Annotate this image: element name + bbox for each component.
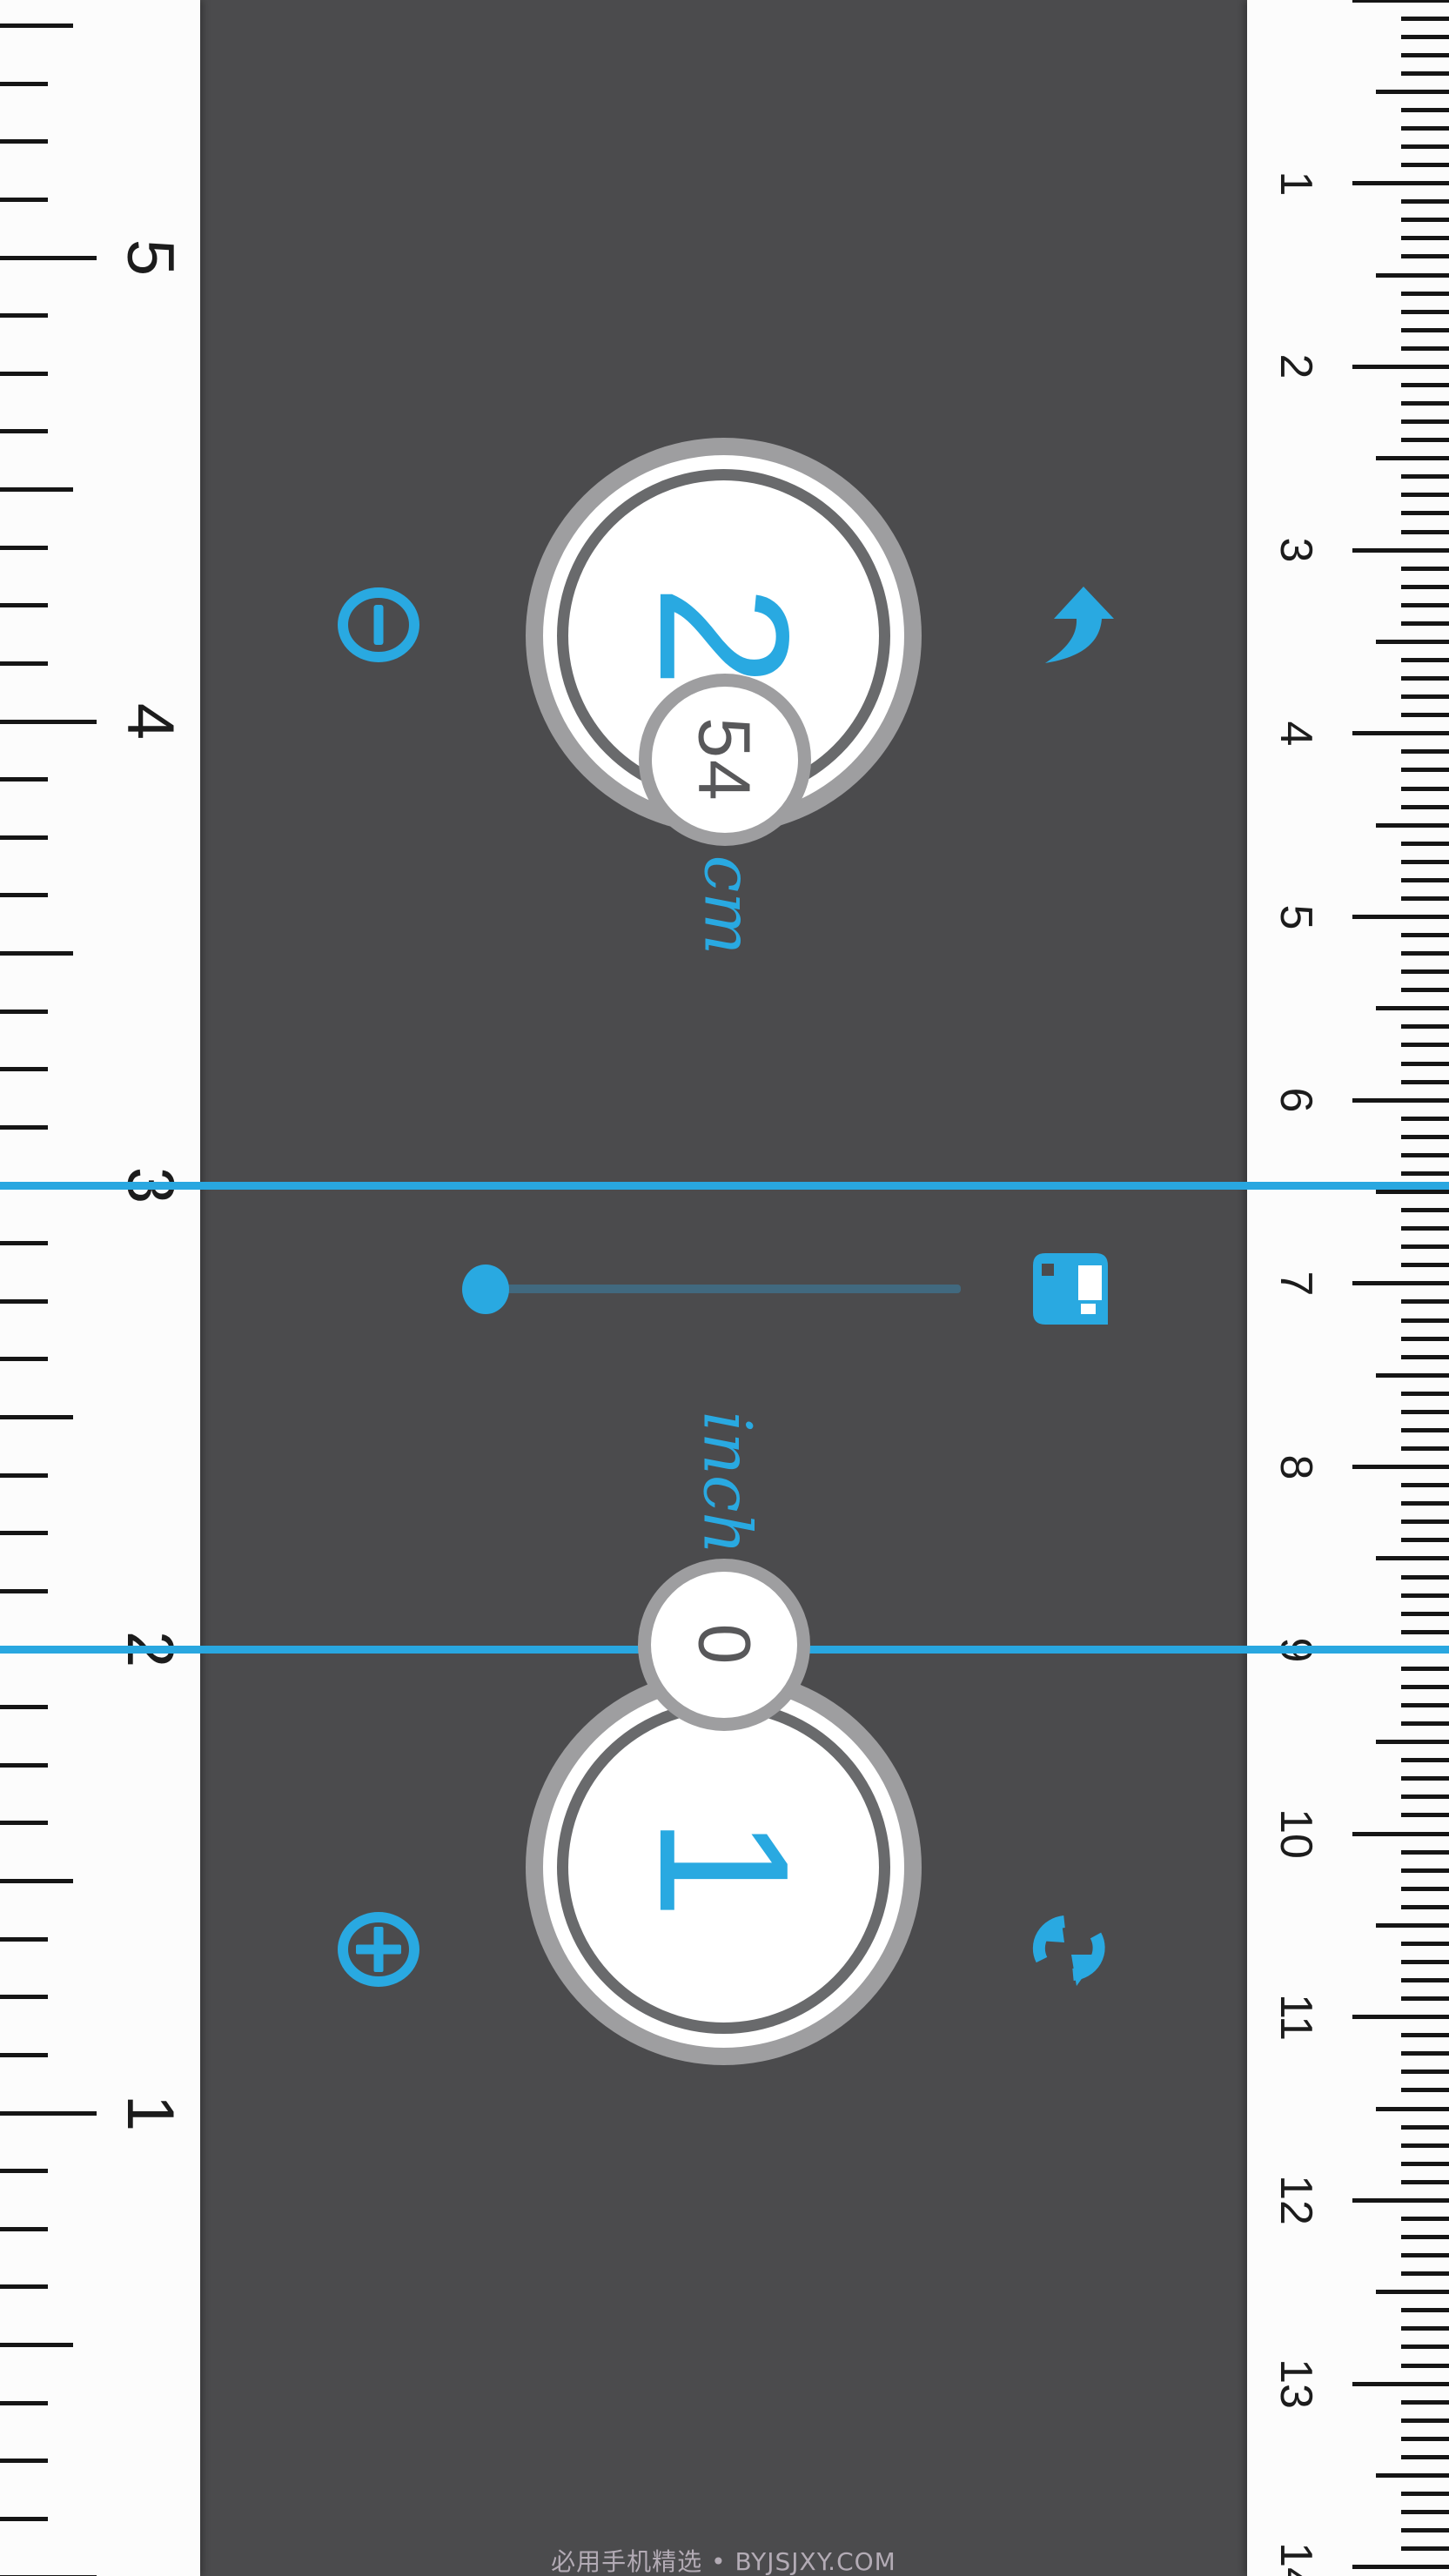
cm-ruler: 1234567891011121314 [1247, 0, 1449, 2576]
add-button[interactable] [337, 1911, 420, 1992]
ruler-tick [1401, 1410, 1449, 1414]
ruler-number: 14 [1273, 2542, 1318, 2576]
ruler-tick [0, 1589, 48, 1593]
ruler-number: 1 [1273, 171, 1318, 196]
ruler-tick [1376, 2473, 1449, 2478]
ruler-tick [0, 23, 73, 28]
ruler-tick [1401, 2180, 1449, 2184]
ruler-tick [1401, 988, 1449, 992]
ruler-number: 5 [1273, 904, 1318, 929]
ruler-tick [1376, 1923, 1449, 1928]
ruler-tick [1401, 1062, 1449, 1066]
ruler-tick [1401, 1758, 1449, 1762]
ruler-tick [1401, 1960, 1449, 1964]
ruler-number: 5 [117, 239, 183, 276]
ruler-tick [1352, 1281, 1449, 1285]
ruler-tick [1376, 640, 1449, 644]
inch-fraction-circle[interactable]: 0 [638, 1559, 810, 1731]
inch-ruler: 12345 [0, 0, 200, 2576]
ruler-tick [1401, 17, 1449, 21]
ruler-tick [1401, 1263, 1449, 1267]
ruler-tick [1401, 1519, 1449, 1524]
ruler-tick [1401, 842, 1449, 846]
measure-line-1[interactable] [0, 1182, 1449, 1190]
ruler-tick [1401, 1575, 1449, 1580]
ruler-number: 4 [1273, 721, 1318, 746]
ruler-tick [1401, 585, 1449, 589]
ruler-tick [1401, 1794, 1449, 1799]
ruler-tick [1401, 292, 1449, 296]
ruler-number: 4 [117, 703, 183, 740]
ruler-tick [1401, 768, 1449, 772]
ruler-tick [1401, 2326, 1449, 2331]
ruler-tick [1401, 805, 1449, 809]
ruler-tick [1401, 1667, 1449, 1671]
ruler-tick [0, 372, 48, 376]
ruler-tick [1401, 860, 1449, 864]
ruler-tick [0, 1879, 73, 1883]
ruler-tick [0, 313, 48, 318]
ruler-tick [0, 198, 48, 202]
ruler-tick [1401, 2510, 1449, 2514]
ruler-tick [1401, 163, 1449, 167]
ruler-tick [1401, 2143, 1449, 2148]
ruler-tick [0, 2459, 48, 2463]
ruler-tick [1401, 2345, 1449, 2349]
ruler-number: 2 [1273, 354, 1318, 379]
ruler-tick [1401, 419, 1449, 424]
ruler-tick [1401, 2528, 1449, 2532]
inch-dial-inner-ring: 1 [557, 1701, 890, 2034]
ruler-tick [1401, 603, 1449, 607]
ruler-tick [1401, 2253, 1449, 2257]
ruler-tick [1401, 2162, 1449, 2166]
ruler-tick [1401, 530, 1449, 534]
ruler-tick [0, 1705, 48, 1709]
ruler-tick [0, 2111, 97, 2116]
ruler-tick [0, 546, 48, 550]
ruler-tick [0, 2227, 48, 2231]
ruler-tick [0, 2053, 48, 2057]
ruler-tick [0, 429, 48, 433]
ruler-tick [0, 835, 48, 840]
ruler-tick [1401, 2271, 1449, 2276]
ruler-tick [1376, 2107, 1449, 2111]
ruler-tick [0, 2343, 73, 2347]
cm-unit-label: cm [667, 835, 788, 975]
ruler-tick [0, 1125, 48, 1130]
ruler-tick [1401, 1226, 1449, 1231]
ruler-tick [1401, 383, 1449, 387]
ruler-tick [0, 893, 48, 897]
ruler-tick [1352, 365, 1449, 369]
ruler-tick [0, 487, 73, 492]
ruler-tick [1401, 2125, 1449, 2130]
ruler-tick [0, 2284, 48, 2289]
undo-button[interactable] [1033, 584, 1115, 670]
ruler-tick [1401, 1208, 1449, 1212]
ruler-tick [1352, 1465, 1449, 1469]
ruler-tick [1401, 787, 1449, 791]
ruler-tick [1401, 2455, 1449, 2459]
ruler-tick [1401, 1887, 1449, 1891]
rotate-button[interactable] [1026, 1908, 1111, 1994]
ruler-tick [1401, 108, 1449, 112]
ruler-tick [1401, 493, 1449, 497]
ruler-tick [1401, 2364, 1449, 2368]
ruler-tick [1401, 1117, 1449, 1121]
ruler-tick [1401, 144, 1449, 149]
ruler-tick [1401, 1171, 1449, 1176]
ruler-tick [1401, 1996, 1449, 2001]
ruler-tick [1401, 2437, 1449, 2441]
ruler-tick [1401, 1721, 1449, 1726]
ruler-tick [1401, 567, 1449, 571]
ruler-tick [0, 661, 48, 666]
ruler-number: 3 [1273, 538, 1318, 563]
ruler-number: 11 [1273, 1994, 1318, 2041]
ruler-tick [1401, 346, 1449, 351]
ruler-tick [1352, 181, 1449, 185]
ruler-tick [1401, 896, 1449, 901]
ruler-tick [1352, 731, 1449, 735]
ruler-tick [1401, 2070, 1449, 2074]
ruler-tick [1401, 1905, 1449, 1909]
ruler-tick [1352, 2382, 1449, 2386]
ruler-tick [1401, 1135, 1449, 1139]
inch-value-fraction: 0 [688, 1624, 761, 1667]
plus-circle-icon [343, 1917, 414, 1982]
ruler-tick [1352, 2198, 1449, 2203]
ruler-tick [1401, 1244, 1449, 1249]
ruler-tick [0, 1995, 48, 1999]
ruler-tick [0, 1763, 48, 1768]
ruler-tick [1401, 2235, 1449, 2239]
ruler-tick [1401, 1501, 1449, 1506]
ruler-tick [0, 720, 97, 724]
ruler-tick [0, 2169, 48, 2173]
slider-thumb[interactable] [462, 1265, 509, 1314]
ruler-tick [1376, 1190, 1449, 1194]
ruler-tick [1401, 1942, 1449, 1946]
ruler-tick [1352, 1832, 1449, 1836]
ruler-tick [0, 1067, 48, 1071]
ruler-tick [1401, 218, 1449, 222]
inch-dial-ring: 1 [543, 1687, 904, 2048]
ruler-tick [1401, 1612, 1449, 1616]
ruler-tick [1401, 1978, 1449, 1982]
ruler-tick [1401, 474, 1449, 479]
ruler-number: 7 [1273, 1271, 1318, 1296]
ruler-app-screen: 12345 1234567891011121314 2 54 cm [0, 0, 1449, 2576]
ruler-tick [1352, 548, 1449, 553]
ruler-tick [1401, 658, 1449, 662]
ruler-tick [1401, 2217, 1449, 2221]
power-icon-bar [374, 605, 384, 645]
ruler-tick [0, 777, 48, 782]
ruler-tick [0, 1241, 48, 1245]
curved-arrow-icon [1045, 587, 1114, 663]
ruler-tick [0, 139, 48, 144]
ruler-tick [1401, 328, 1449, 332]
ruler-tick [1401, 1703, 1449, 1707]
ruler-tick [1401, 749, 1449, 754]
power-button[interactable] [337, 587, 420, 667]
ruler-tick [1401, 1850, 1449, 1855]
ruler-tick [1401, 1299, 1449, 1304]
ruler-tick [0, 2401, 48, 2405]
ruler-tick [1401, 511, 1449, 515]
ruler-tick [1401, 1337, 1449, 1341]
ruler-tick [1401, 2033, 1449, 2037]
ruler-tick [1352, 2565, 1449, 2569]
ruler-tick [1401, 621, 1449, 626]
ruler-tick [1401, 1318, 1449, 1323]
ruler-tick [1401, 2051, 1449, 2056]
ruler-tick [1401, 2492, 1449, 2496]
ruler-tick [0, 1473, 48, 1478]
ruler-tick [0, 1357, 48, 1361]
ruler-tick [1401, 933, 1449, 937]
ruler-tick [1376, 273, 1449, 278]
ruler-tick [1401, 1446, 1449, 1451]
ruler-tick [0, 1821, 48, 1825]
ruler-tick [0, 1010, 48, 1014]
ruler-tick [1401, 1593, 1449, 1598]
ruler-tick [1352, 2015, 1449, 2019]
ruler-tick [1401, 2400, 1449, 2405]
cm-value-fraction: 54 [688, 717, 761, 802]
ruler-tick [1376, 823, 1449, 828]
ruler-tick [1401, 1153, 1449, 1157]
ruler-tick [1352, 1098, 1449, 1103]
ruler-tick [1401, 53, 1449, 57]
ruler-tick [1401, 1355, 1449, 1359]
ruler-tick [0, 1531, 48, 1535]
ruler-number: 8 [1273, 1454, 1318, 1479]
inch-value-integer: 1 [632, 1816, 816, 1919]
ruler-tick [1376, 1373, 1449, 1378]
ruler-number: 13 [1273, 2358, 1318, 2409]
ruler-tick [1401, 401, 1449, 406]
ruler-tick [1376, 90, 1449, 94]
ruler-tick [1401, 878, 1449, 882]
ruler-tick [1401, 35, 1449, 39]
ruler-tick [1401, 1043, 1449, 1047]
floppy-disk-icon [1033, 1253, 1108, 1325]
ruler-tick [1401, 2088, 1449, 2092]
ruler-tick [1401, 1868, 1449, 1873]
ruler-tick [0, 1299, 48, 1304]
ruler-tick [0, 2517, 48, 2521]
ruler-tick [1401, 126, 1449, 131]
ruler-tick [1401, 1813, 1449, 1817]
watermark-text: 必用手机精选 • BYJSJXY.COM [200, 2543, 1247, 2576]
ruler-tick [1401, 2418, 1449, 2423]
ruler-tick [0, 951, 73, 956]
ruler-tick [1401, 254, 1449, 258]
ruler-tick [1401, 1080, 1449, 1084]
ruler-tick [1376, 1740, 1449, 1744]
ruler-tick [1401, 969, 1449, 974]
ruler-tick [1376, 2290, 1449, 2294]
ruler-tick [1401, 1428, 1449, 1432]
ruler-tick [1376, 1556, 1449, 1560]
ruler-tick [1376, 1006, 1449, 1010]
ruler-tick [1352, 0, 1449, 3]
ruler-tick [1401, 310, 1449, 314]
ruler-tick [1401, 199, 1449, 204]
ruler-tick [1352, 915, 1449, 919]
slider-track[interactable] [486, 1285, 961, 1293]
ruler-tick [1401, 2308, 1449, 2312]
ruler-tick [0, 82, 48, 86]
ruler-tick [1401, 1024, 1449, 1029]
ruler-tick [1401, 713, 1449, 717]
ruler-tick [1401, 676, 1449, 681]
ruler-tick [1401, 2546, 1449, 2551]
ruler-tick [1401, 694, 1449, 699]
ruler-tick [1401, 1776, 1449, 1781]
ruler-tick [0, 1415, 73, 1419]
ruler-tick [1401, 1483, 1449, 1487]
ruler-number: 12 [1273, 2175, 1318, 2225]
ruler-number: 1 [117, 2095, 183, 2131]
ruler-tick [1401, 1538, 1449, 1542]
ruler-number: 10 [1273, 1808, 1318, 1859]
cm-value-integer: 2 [632, 585, 816, 688]
inch-dial-face: 1 [568, 1712, 879, 2023]
refresh-icon [1038, 1916, 1099, 1986]
ruler-tick [1401, 438, 1449, 442]
cm-fraction-circle[interactable]: 54 [639, 674, 811, 846]
ruler-tick [0, 603, 48, 607]
ruler-tick [1376, 456, 1449, 460]
save-button[interactable] [1033, 1253, 1108, 1329]
ruler-tick [0, 1937, 48, 1942]
ruler-tick [1401, 951, 1449, 956]
ruler-tick [0, 256, 97, 260]
ruler-tick [1401, 1630, 1449, 1634]
inch-unit-label: inch [666, 1413, 788, 1553]
ruler-tick [1401, 71, 1449, 76]
ruler-tick [1401, 1392, 1449, 1396]
ruler-tick [1401, 236, 1449, 240]
ruler-number: 6 [1273, 1088, 1318, 1113]
ruler-tick [1401, 1685, 1449, 1689]
